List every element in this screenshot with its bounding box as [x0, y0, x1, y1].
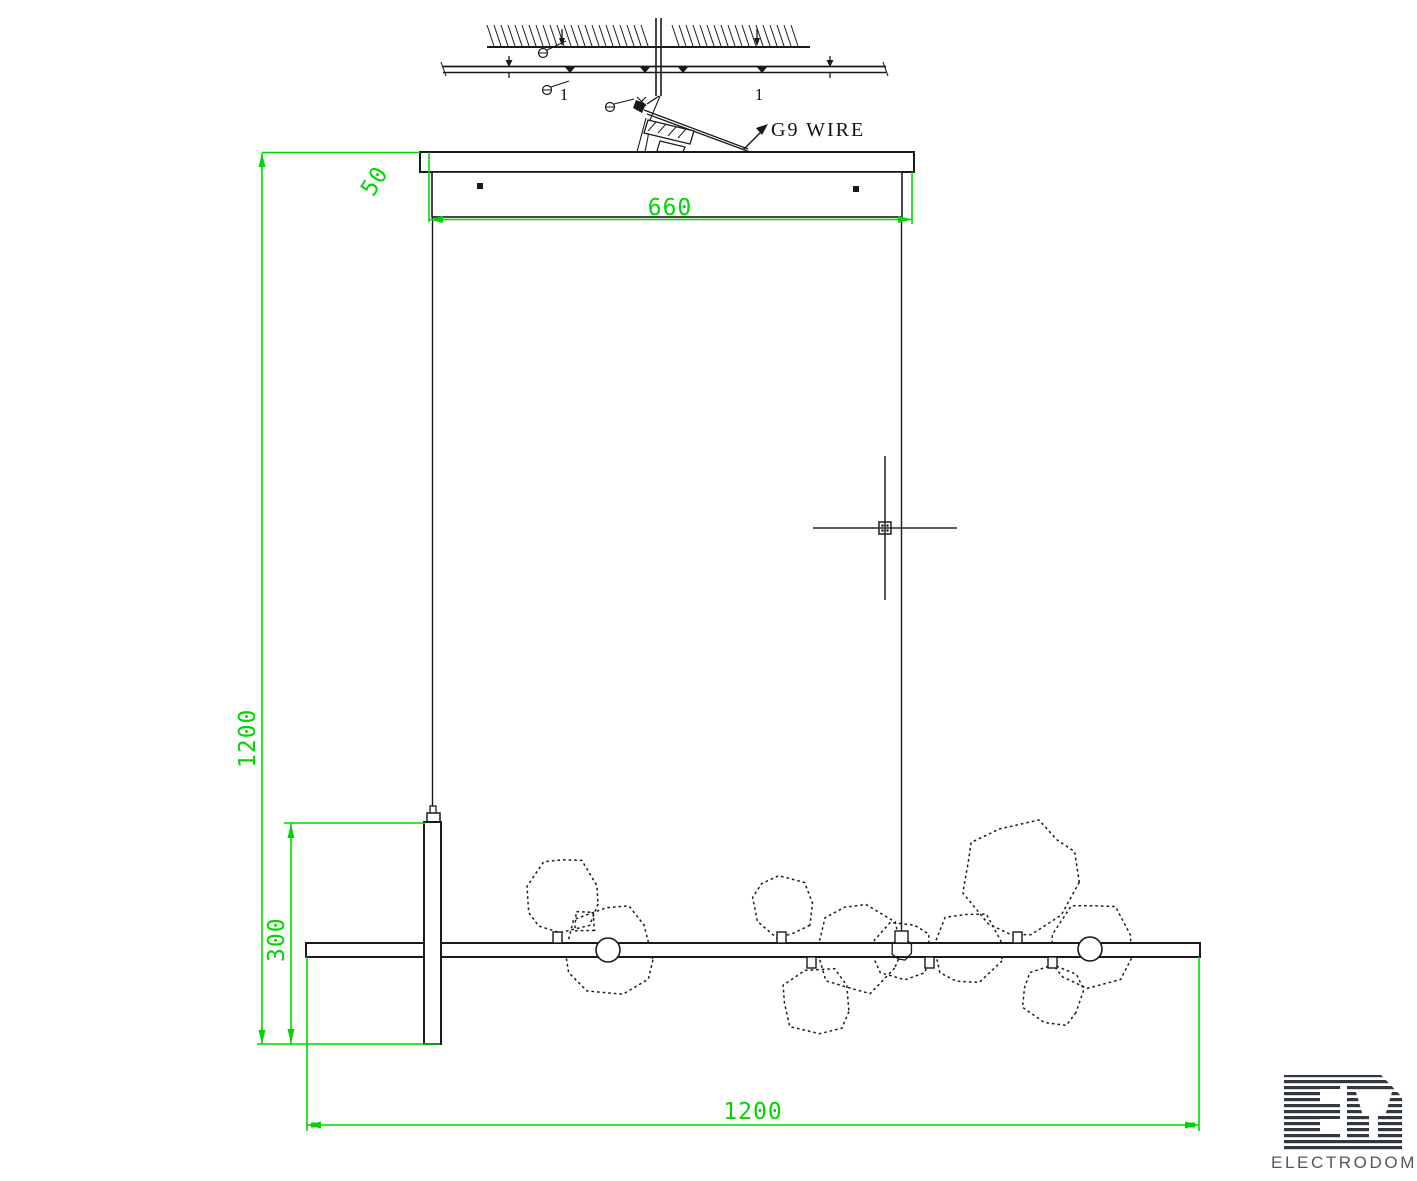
dim-overall-drop: [259, 153, 421, 1045]
glass-disc-large: [963, 820, 1080, 935]
hanger-rod: [656, 18, 661, 96]
socket-connector: [777, 932, 786, 943]
socket-connector: [1048, 957, 1057, 968]
socket-connector: [1013, 932, 1022, 943]
canopy-top-plate: [420, 152, 914, 172]
screw-icon: [606, 99, 635, 112]
lamp-socket: [596, 938, 620, 962]
dim-canopy-width-value: 660: [648, 195, 693, 221]
canopy-screw: [853, 186, 859, 192]
g9-wire-leader-arrow: [743, 124, 768, 150]
g9-wire-label: G9 WIRE: [771, 119, 865, 141]
socket-connector: [925, 957, 934, 968]
rail-position-label-left: 1: [560, 85, 569, 104]
dim-overall-drop-value: 1200: [235, 709, 261, 768]
electrodom-logo: ED ELECTRODOM: [1271, 1075, 1417, 1172]
socket-connector: [553, 932, 562, 943]
swivel-bracket: [633, 96, 750, 157]
dim-tube-height-value: 300: [264, 917, 290, 962]
logo-wordmark: ELECTRODOM: [1271, 1153, 1417, 1172]
glass-disc: [527, 860, 598, 933]
ceiling-hatch-right: [672, 25, 798, 46]
ceiling-hatch: [487, 25, 648, 46]
canopy-screw: [477, 183, 483, 189]
glass-disc: [753, 876, 813, 938]
dim-bar-length-value: 1200: [723, 1099, 782, 1125]
rail-position-label-right: 1: [755, 85, 764, 104]
socket-connector: [807, 957, 816, 968]
wire-connector: [895, 931, 908, 943]
logo-monogram: ED: [1284, 1075, 1402, 1151]
glass-disc: [1023, 965, 1084, 1026]
crosshair-cursor[interactable]: [813, 456, 957, 600]
glass-disc: [783, 969, 849, 1034]
pendant-tube: [424, 806, 441, 1044]
lamp-socket: [1078, 937, 1102, 961]
cad-drawing-canvas: 1 1: [0, 0, 1417, 1181]
dim-canopy-height-value: 50: [356, 162, 394, 201]
